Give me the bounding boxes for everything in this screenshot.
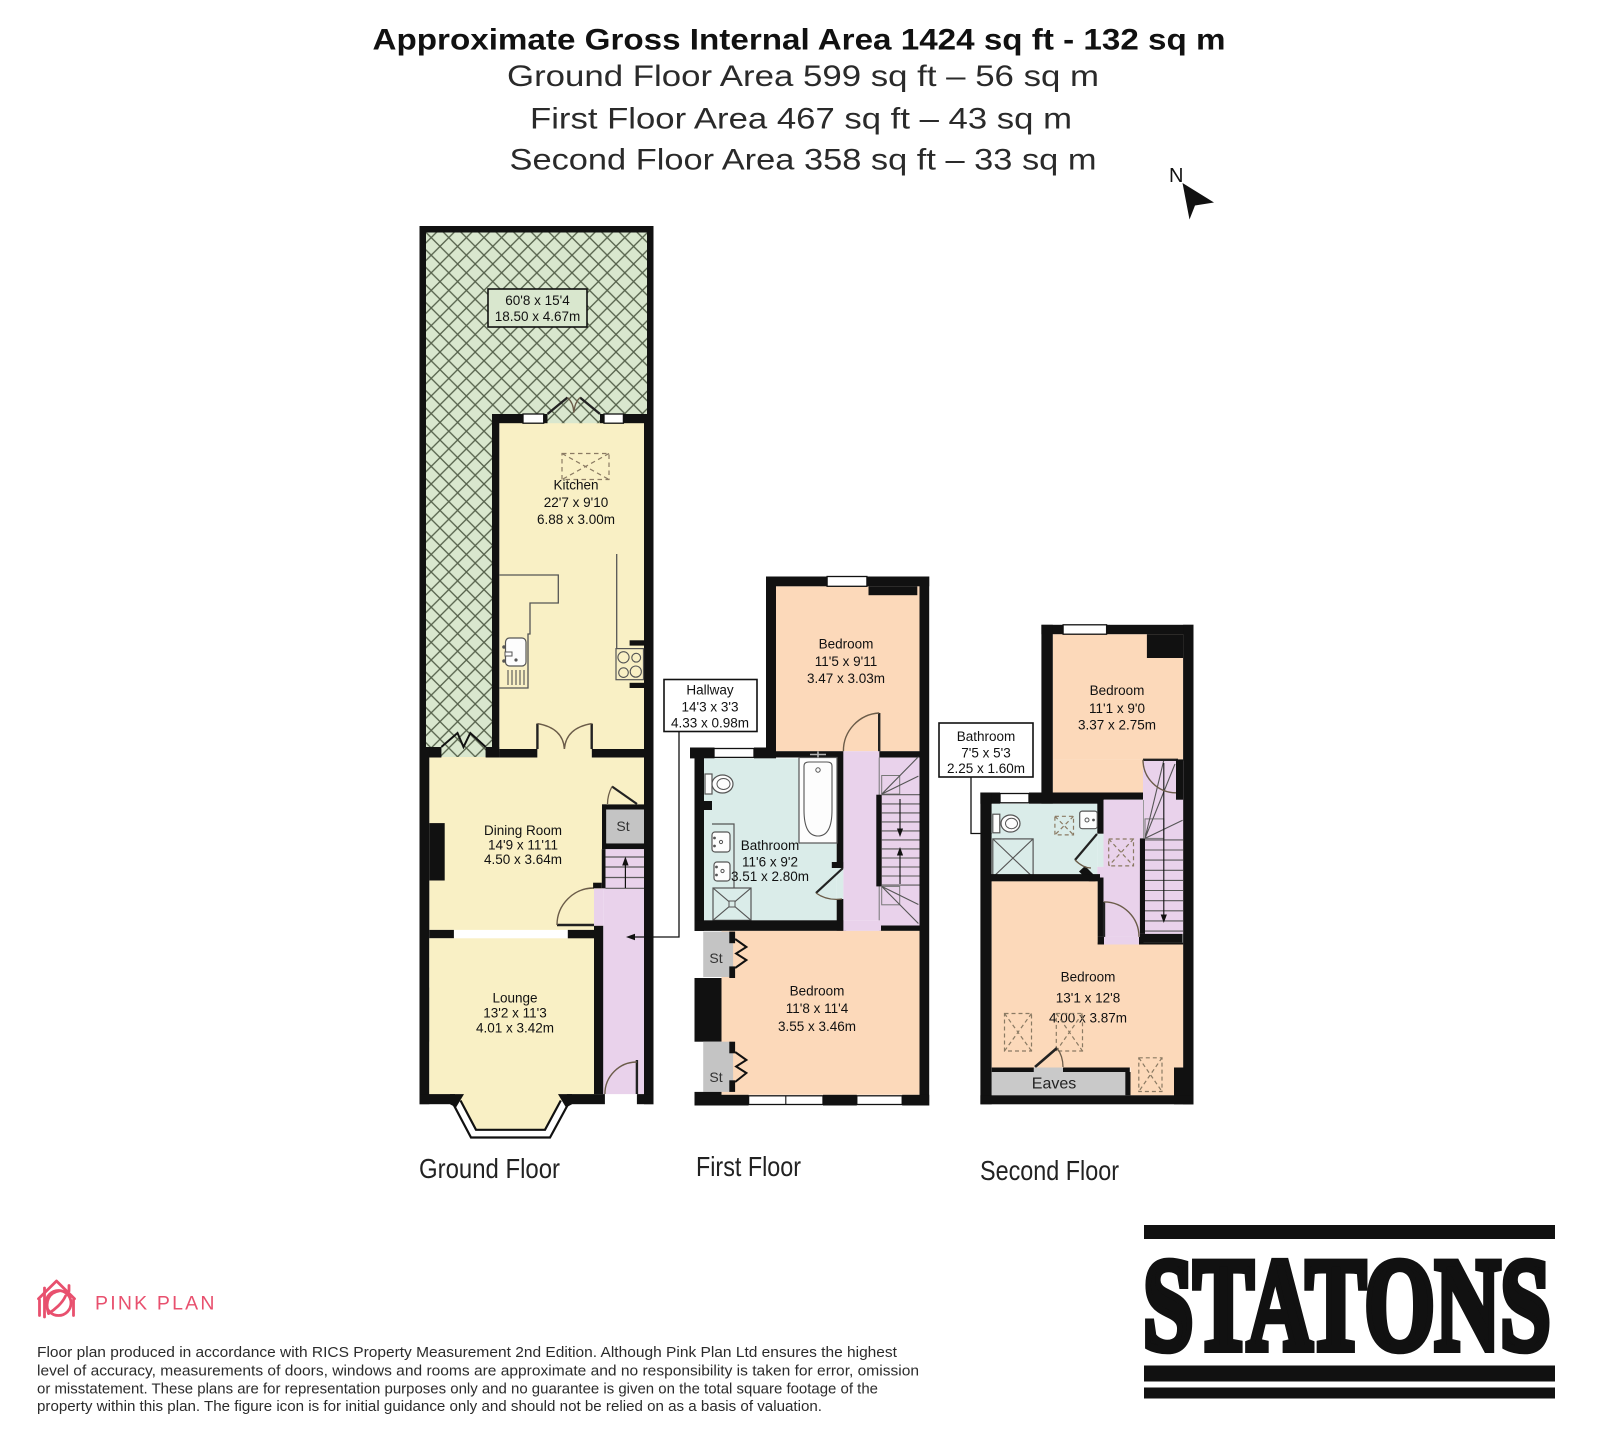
svg-text:Floor plan produced in accorda: Floor plan produced in accordance with R… <box>37 1345 897 1361</box>
svg-text:property within this plan. The: property within this plan. The figure ic… <box>37 1399 822 1415</box>
svg-text:3.51 x 2.80m: 3.51 x 2.80m <box>731 869 809 884</box>
svg-text:level of accuracy, measurement: level of accuracy, measurements of doors… <box>37 1364 919 1380</box>
svg-text:Bedroom: Bedroom <box>790 984 845 999</box>
svg-text:60'8 x 15'4: 60'8 x 15'4 <box>505 293 570 308</box>
svg-text:Ground Floor: Ground Floor <box>419 1153 560 1184</box>
svg-text:4.50 x 3.64m: 4.50 x 3.64m <box>484 852 562 867</box>
svg-text:14'9 x 11'11: 14'9 x 11'11 <box>488 838 558 853</box>
svg-text:PINK PLAN: PINK PLAN <box>95 1293 217 1315</box>
svg-text:Hallway: Hallway <box>686 683 734 698</box>
svg-text:3.37 x 2.75m: 3.37 x 2.75m <box>1078 718 1156 733</box>
svg-text:N: N <box>1169 165 1183 187</box>
svg-text:4.33 x 0.98m: 4.33 x 0.98m <box>671 716 749 731</box>
svg-text:2.25 x 1.60m: 2.25 x 1.60m <box>947 761 1025 776</box>
svg-text:11'5 x 9'11: 11'5 x 9'11 <box>815 654 877 669</box>
svg-text:Kitchen: Kitchen <box>553 478 598 493</box>
svg-text:6.88 x 3.00m: 6.88 x 3.00m <box>537 512 615 527</box>
svg-text:13'2 x 11'3: 13'2 x 11'3 <box>483 1006 546 1021</box>
svg-text:Approximate Gross Internal Are: Approximate Gross Internal Area 1424 sq … <box>373 24 1226 57</box>
svg-text:Lounge: Lounge <box>492 991 537 1006</box>
svg-text:St: St <box>709 950 722 966</box>
svg-text:Bedroom: Bedroom <box>1090 683 1145 698</box>
svg-text:Second Floor: Second Floor <box>980 1155 1119 1186</box>
svg-text:Eaves: Eaves <box>1032 1076 1076 1093</box>
svg-text:11'6 x 9'2: 11'6 x 9'2 <box>742 855 798 870</box>
svg-text:11'8 x 11'4: 11'8 x 11'4 <box>786 1001 849 1016</box>
svg-text:St: St <box>616 818 629 834</box>
svg-text:St: St <box>709 1069 722 1085</box>
svg-text:13'1 x 12'8: 13'1 x 12'8 <box>1056 991 1120 1006</box>
svg-text:Second Floor Area 358 sq ft –: Second Floor Area 358 sq ft – 33 sq m <box>510 144 1097 177</box>
svg-text:4.01 x 3.42m: 4.01 x 3.42m <box>476 1021 554 1036</box>
svg-text:Bathroom: Bathroom <box>957 729 1016 744</box>
svg-text:3.47 x 3.03m: 3.47 x 3.03m <box>807 671 885 686</box>
svg-text:18.50 x 4.67m: 18.50 x 4.67m <box>495 309 581 324</box>
svg-text:3.55 x 3.46m: 3.55 x 3.46m <box>778 1019 856 1034</box>
svg-text:First Floor Area 467 sq ft – 4: First Floor Area 467 sq ft – 43 sq m <box>530 103 1072 136</box>
svg-text:Bedroom: Bedroom <box>1061 970 1116 985</box>
svg-text:22'7 x 9'10: 22'7 x 9'10 <box>544 495 608 510</box>
svg-text:First Floor: First Floor <box>696 1151 801 1182</box>
svg-text:7'5 x 5'3: 7'5 x 5'3 <box>961 746 1010 761</box>
svg-text:14'3 x 3'3: 14'3 x 3'3 <box>682 700 739 715</box>
svg-text:Ground Floor Area 599 sq ft –: Ground Floor Area 599 sq ft – 56 sq m <box>507 60 1099 93</box>
svg-text:Dining Room: Dining Room <box>484 823 562 838</box>
svg-text:or misstatement. These plans a: or misstatement. These plans are for rep… <box>37 1382 878 1398</box>
svg-text:Bathroom: Bathroom <box>741 838 800 853</box>
svg-text:4.00 x 3.87m: 4.00 x 3.87m <box>1049 1011 1127 1026</box>
svg-text:Bedroom: Bedroom <box>819 637 874 652</box>
svg-text:STATONS: STATONS <box>1143 1232 1551 1378</box>
svg-text:11'1 x 9'0: 11'1 x 9'0 <box>1089 701 1145 716</box>
